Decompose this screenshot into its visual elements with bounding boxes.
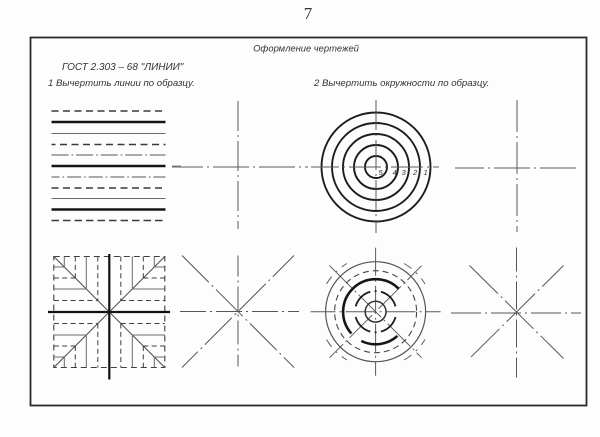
svg-text:ГОСТ 2.303 – 68 "ЛИНИИ": ГОСТ 2.303 – 68 "ЛИНИИ" xyxy=(62,62,184,73)
svg-text:4: 4 xyxy=(393,168,397,177)
svg-text:2: 2 xyxy=(412,168,418,177)
svg-text:7: 7 xyxy=(304,4,313,23)
svg-text:1 Вычертить линии по образцу.: 1 Вычертить линии по образцу. xyxy=(48,78,195,89)
svg-text:1: 1 xyxy=(424,168,428,177)
svg-text:3: 3 xyxy=(402,168,407,177)
svg-text:2 Вычертить окружности по обра: 2 Вычертить окружности по образцу. xyxy=(313,78,489,89)
svg-text:Оформление чертежей: Оформление чертежей xyxy=(253,43,360,54)
